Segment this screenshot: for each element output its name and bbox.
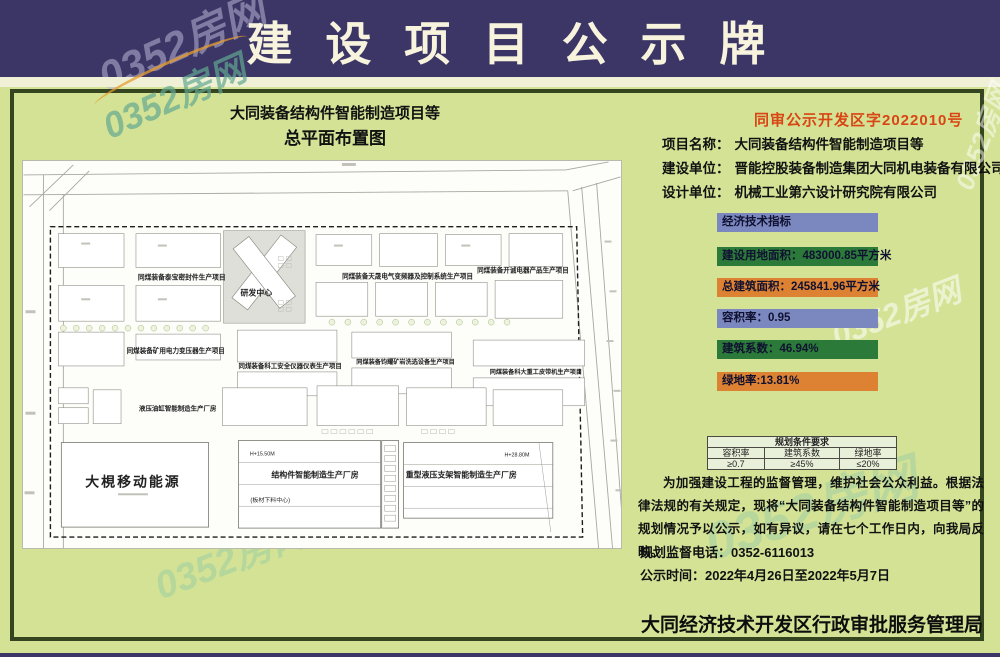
approval-doc-number: 同审公示开发区字2022010号 [754, 109, 963, 130]
indicator-bar-green-ratio: 绿地率:13.81% [717, 372, 878, 391]
rd-center-label: 研发中心 [240, 287, 272, 297]
building-block [58, 280, 562, 321]
conditions-header-green-ratio: 绿地率 [840, 448, 897, 459]
publicity-period-line: 公示时间：2022年4月26日至2022年5月7日 [640, 565, 890, 584]
field-construction-unit: 建设单位：晋能控股装备制造集团大同机电装备有限公司 [662, 157, 1000, 177]
phone-label: 规划监督电话： [640, 545, 731, 560]
indicator-bar-plot-ratio: 容积率：0.95 [717, 309, 878, 328]
notice-board: 0352房网 建 设 项 目 公 示 牌 0352房网 0352房网 0352房… [0, 0, 1000, 657]
site-plan-title-line2: 总平面布置图 [180, 126, 490, 152]
indicator-bar-building-coeff: 建筑系数：46.94% [717, 340, 878, 359]
site-plan-title-line1: 大同装备结构件智能制造项目等 [180, 102, 490, 126]
field-label: 建设单位： [662, 161, 730, 176]
indicator-bar-floor-area: 总建筑面积：245841.96平方米 [717, 278, 878, 297]
field-value: 大同装备结构件智能制造项目等 [735, 137, 924, 152]
zone-label-jiegou: 结构件智能制造生产厂房 [271, 469, 358, 479]
conditions-value-building-coeff: ≥45% [764, 459, 839, 470]
zone-label-jiegou-sub: (板材下料中心) [250, 496, 290, 504]
conditions-header-building-coeff: 建筑系数 [764, 448, 839, 459]
issuing-agency: 大同经济技术开发区行政审批服务管理局 [636, 610, 988, 637]
site-plan-title: 大同装备结构件智能制造项目等 总平面布置图 [180, 102, 490, 152]
zone-label-kegong: 同煤装备科工安全仪器仪表生产项目 [239, 361, 342, 370]
conditions-header-plot-ratio: 容积率 [708, 448, 765, 459]
conditions-value-plot-ratio: ≥0.7 [708, 459, 765, 470]
zone-label-yeya: 液压油缸智能制造生产厂房 [139, 404, 217, 413]
board-header: 0352房网 建 设 项 目 公 示 牌 [0, 0, 1000, 77]
building-block [58, 234, 562, 268]
planning-conditions-table: 规划条件要求 容积率 建筑系数 绿地率 ≥0.7 ≥45% ≤20% [707, 436, 897, 470]
period-label: 公示时间： [640, 568, 705, 583]
field-value: 机械工业第六设计研究院有限公司 [735, 185, 938, 200]
period-value: 2022年4月26日至2022年5月7日 [705, 568, 890, 583]
height-label-right: H+28.80M [505, 452, 530, 458]
phone-number: 0352-6116013 [731, 545, 814, 560]
supervision-phone-line: 规划监督电话：0352-6116013 [640, 542, 814, 561]
field-value: 晋能控股装备制造集团大同机电装备有限公司 [735, 161, 1000, 176]
conditions-value-green-ratio: ≤20% [840, 459, 897, 470]
indicator-bar-title: 经济技术指标 [717, 213, 878, 232]
site-plan-drawing: 研发中心 [23, 161, 621, 548]
info-panel: 同审公示开发区字2022010号 项目名称：大同装备结构件智能制造项目等 建设单… [636, 100, 988, 640]
field-project-name: 项目名称：大同装备结构件智能制造项目等 [662, 133, 924, 153]
zone-label-keda: 同煤装备科大重工皮带机生产项目 [490, 368, 582, 376]
zone-label-kuangyong: 同煤装备矿用电力变压器生产项目 [127, 346, 225, 355]
field-label: 项目名称： [662, 137, 730, 152]
zone-label-zhongxing: 重型液压支架智能制造生产厂房 [406, 469, 517, 479]
field-design-unit: 设计单位：机械工业第六设计研究院有限公司 [662, 181, 937, 201]
header-separator [0, 77, 1000, 87]
zone-label-junyao: 同煤装备钧耀矿岩洗选设备生产项目 [356, 358, 455, 366]
zone-label-kaicheng: 同煤装备开诚电器产品生产项目 [477, 265, 569, 274]
board-title: 建 设 项 目 公 示 牌 [0, 8, 1000, 74]
board-bottom-edge [0, 653, 1000, 657]
zone-label-tiansheng: 同煤装备天晟电气变频器及控制系统生产项目 [342, 271, 473, 280]
site-plan-sheet: 研发中心 [22, 160, 622, 549]
conditions-table-title: 规划条件要求 [708, 437, 897, 448]
indicator-bar-land-area: 建设用地面积：483000.85平方米 [717, 247, 878, 266]
zone-label-taibao: 同煤装备泰宝密封件生产项目 [138, 272, 226, 281]
height-label-left: H+15.50M [250, 451, 275, 457]
field-label: 设计单位： [662, 185, 730, 200]
zone-label-daju: 大梘移动能源 [85, 473, 180, 489]
rd-center-block: 研发中心 [224, 231, 306, 324]
